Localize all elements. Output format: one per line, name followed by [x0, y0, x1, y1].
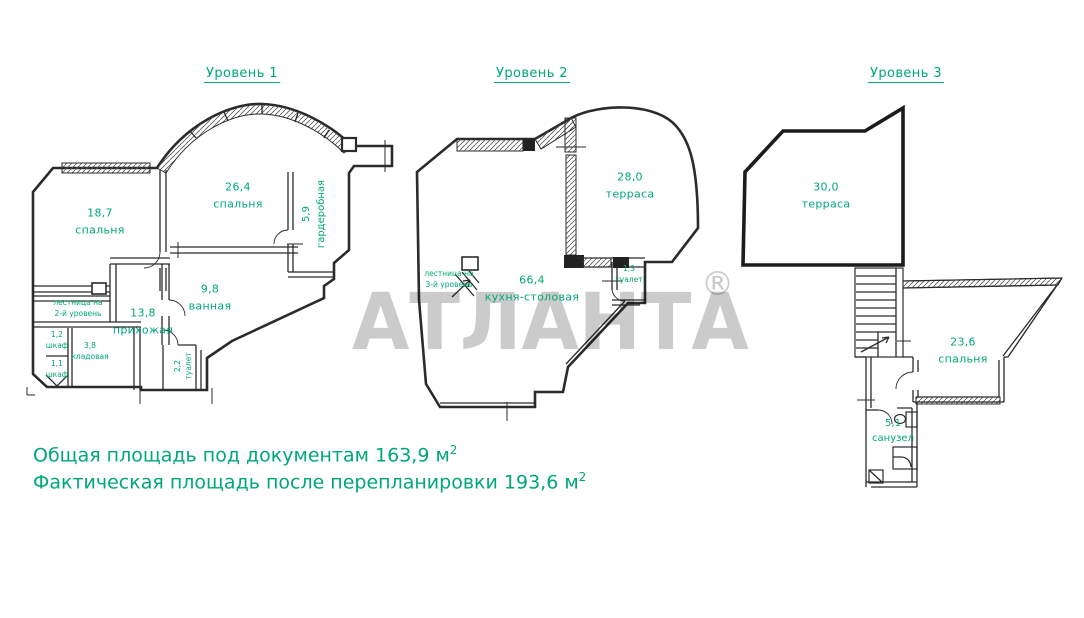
- room-name: лестница на: [424, 269, 473, 280]
- room-name: прихожая: [113, 322, 173, 339]
- room-name: туалет: [615, 275, 642, 286]
- level2-title: Уровень 2: [494, 66, 570, 83]
- room-area: 2,2: [173, 352, 184, 379]
- room-area: 23,6: [938, 335, 987, 352]
- room-label-bathroom-9-8: 9,8 ванная: [189, 282, 232, 315]
- room-name: спальня: [938, 351, 987, 368]
- room-label-terrace-30-0: 30,0 терраса: [802, 180, 851, 213]
- room-area: 66,4: [485, 273, 579, 290]
- room-label-stairs-to-level3: лестница на 3-й уровень: [424, 269, 473, 291]
- room-label-wardrobe-5-9: 5,9 гардеробная: [299, 180, 329, 248]
- room-label-wc-1-3: 1,3 туалет: [615, 264, 642, 286]
- room-label-wc-2-2: 2,2 туалет: [173, 352, 195, 379]
- room-name: спальня: [213, 196, 262, 213]
- window-band: [583, 258, 611, 267]
- actual-area-text: Фактическая площадь после перепланировки…: [33, 471, 579, 493]
- room-label-bedroom-23-6: 23,6 спальня: [938, 335, 987, 368]
- wall-pier: [342, 138, 356, 151]
- arched-window-band: [157, 104, 352, 173]
- window-band: [62, 163, 150, 173]
- terrace-wall-window: [566, 155, 576, 255]
- actual-area-line: Фактическая площадь после перепланировки…: [33, 470, 586, 493]
- room-area: 5,9: [299, 180, 314, 248]
- room-label-sanroom-5-1: 5,1 санузел: [872, 416, 914, 446]
- room-area: 1,3: [615, 264, 642, 275]
- room-name: шкаф: [46, 341, 68, 352]
- window-band: [457, 139, 523, 151]
- room-name: санузел: [872, 431, 914, 446]
- room-label-bedroom-18-7: 18,7 спальня: [75, 206, 124, 239]
- room-label-hallway-13-8: 13,8 прихожая: [113, 306, 173, 339]
- room-area: 1,2: [46, 330, 68, 341]
- window-band: [916, 397, 1000, 404]
- square-meter-sup: 2: [579, 470, 587, 484]
- square-meter-sup: 2: [450, 443, 458, 457]
- room-name-line2: 3-й уровень: [424, 280, 473, 291]
- room-name: гардеробная: [314, 180, 329, 248]
- room-area: 5,1: [872, 416, 914, 431]
- room-name-line2: 2-й уровень: [53, 309, 102, 320]
- room-name: ванная: [189, 298, 232, 315]
- room-area: 28,0: [606, 170, 655, 187]
- room-label-kitchen-66-4: 66,4 кухня-столовая: [485, 273, 579, 306]
- room-label-terrace-28-0: 28,0 терраса: [606, 170, 655, 203]
- room-name: шкаф: [46, 370, 68, 381]
- room-area: 1,1: [46, 359, 68, 370]
- room-name: лестница на: [53, 298, 102, 309]
- room-name: спальня: [75, 222, 124, 239]
- room-area: 3,8: [71, 341, 108, 352]
- floorplan-document: АТЛАНТА ® Уровень 1 Уровень 2 Уровень 3 …: [0, 0, 1084, 618]
- room-area: 9,8: [189, 282, 232, 299]
- total-area-text: Общая площадь под документам 163,9 м: [33, 444, 450, 466]
- room-label-bedroom-26-4: 26,4 спальня: [213, 180, 262, 213]
- room-label-closet-1-1: 1,1 шкаф: [46, 359, 68, 381]
- room-label-storage-3-8: 3,8 кладовая: [71, 341, 108, 363]
- room-area: 26,4: [213, 180, 262, 197]
- wall-pier: [92, 283, 106, 294]
- level2-walls: [417, 107, 698, 421]
- room-name: туалет: [184, 352, 195, 379]
- room-area: 18,7: [75, 206, 124, 223]
- stair-landing: [462, 257, 478, 270]
- level1-title: Уровень 1: [204, 66, 280, 83]
- room-label-closet-1-2: 1,2 шкаф: [46, 330, 68, 352]
- total-area-line: Общая площадь под документам 163,9 м2: [33, 443, 457, 466]
- room-name: кладовая: [71, 352, 108, 363]
- room-name: терраса: [606, 186, 655, 203]
- room-area: 30,0: [802, 180, 851, 197]
- room-label-stairs-to-level2: лестница на 2-й уровень: [53, 298, 102, 320]
- room-area: 13,8: [113, 306, 173, 323]
- room-name: терраса: [802, 196, 851, 213]
- level3-title: Уровень 3: [868, 66, 944, 83]
- room-name: кухня-столовая: [485, 289, 579, 306]
